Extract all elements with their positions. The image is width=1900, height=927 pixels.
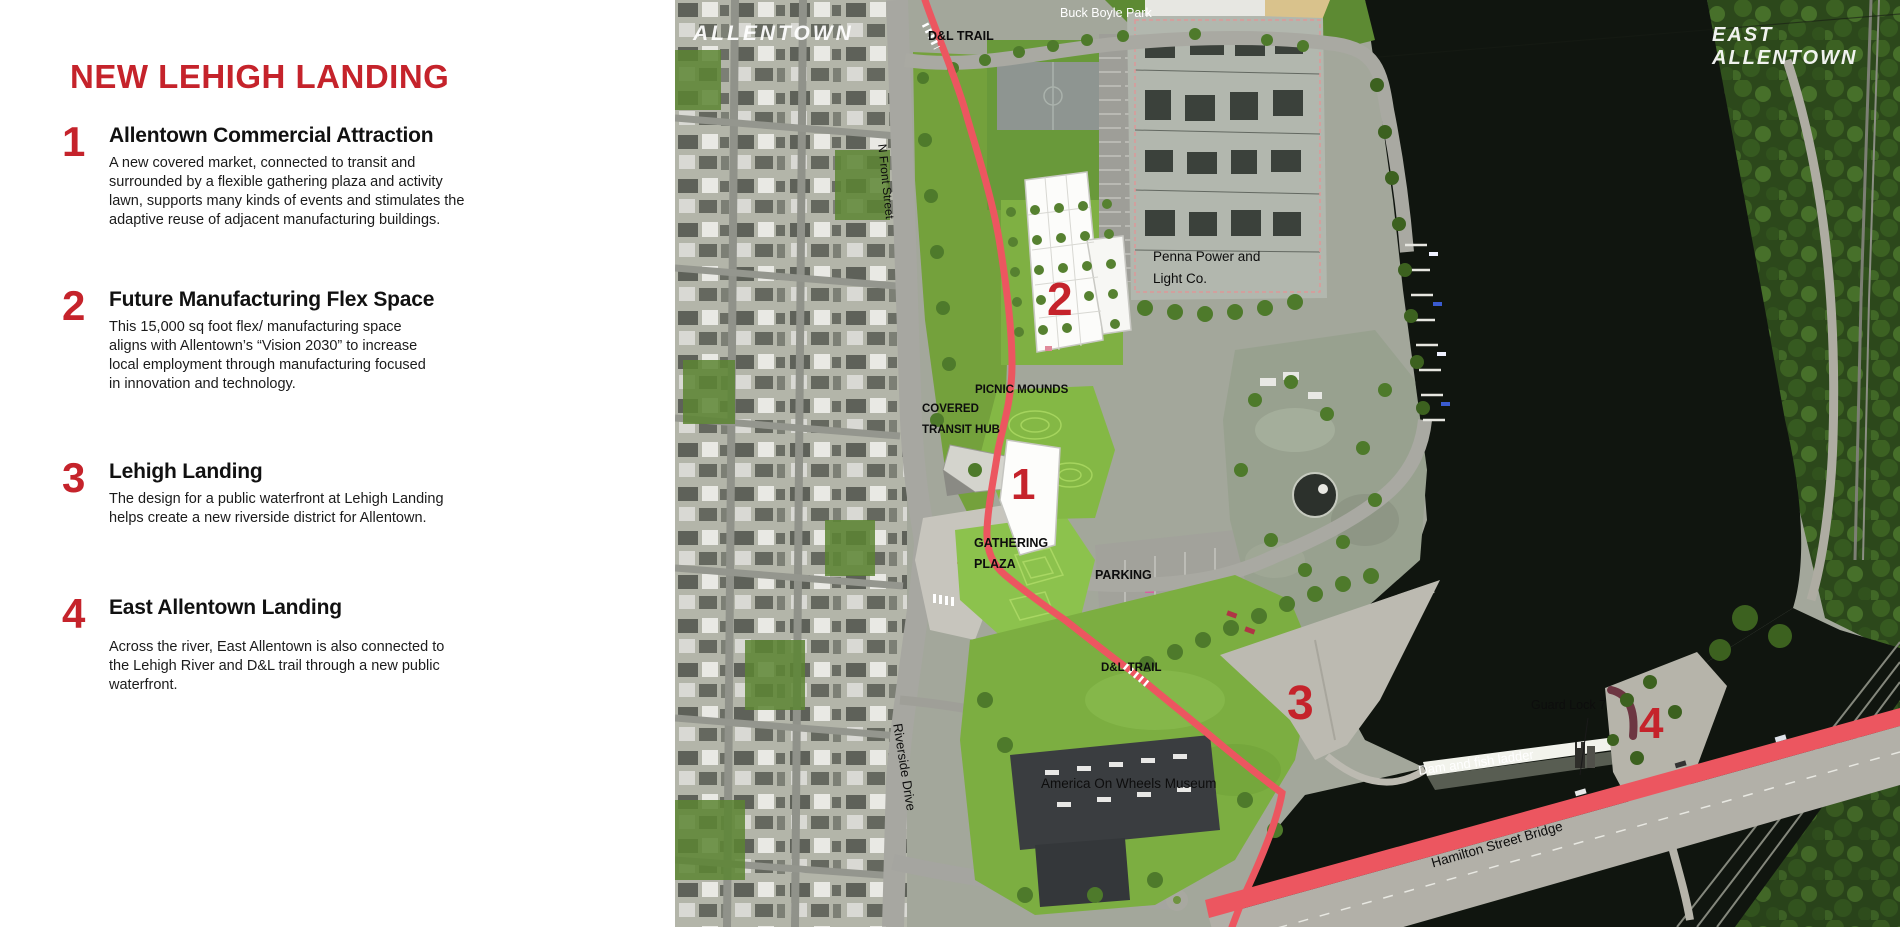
map-marker-4: 4 bbox=[1639, 702, 1663, 746]
urban-blocks bbox=[675, 0, 907, 927]
legend-number-1: 1 bbox=[62, 124, 109, 231]
legend-panel: NEW LEHIGH LANDING 1 Allentown Commercia… bbox=[0, 0, 675, 927]
legend-body-3: The design for a public waterfront at Le… bbox=[109, 490, 552, 528]
legend-heading-2: Future Manufacturing Flex Space bbox=[109, 288, 552, 312]
legend-item-3: 3 Lehigh Landing The design for a public… bbox=[62, 460, 552, 528]
legend-body-1: A new covered market, connected to trans… bbox=[109, 154, 552, 231]
legend-item-1: 1 Allentown Commercial Attraction A new … bbox=[62, 124, 552, 231]
label-dl-trail-top: D&L TRAIL bbox=[928, 27, 994, 46]
legend-heading-1: Allentown Commercial Attraction bbox=[109, 124, 552, 148]
legend-body-4: Across the river, East Allentown is also… bbox=[109, 638, 552, 695]
label-gathering-plaza: GATHERING PLAZA bbox=[974, 533, 1048, 576]
legend-item-2: 2 Future Manufacturing Flex Space This 1… bbox=[62, 288, 552, 395]
site-plan-map: ALLENTOWN EAST ALLENTOWN Buck Boyle Park… bbox=[675, 0, 1900, 927]
legend-item-4: 4 East Allentown Landing Across the rive… bbox=[62, 596, 552, 695]
label-parking: PARKING bbox=[1095, 566, 1152, 585]
label-penna-power: Penna Power and Light Co. bbox=[1153, 246, 1260, 289]
legend-heading-4: East Allentown Landing bbox=[109, 596, 552, 620]
legend-body-2: This 15,000 sq foot flex/ manufacturing … bbox=[109, 318, 552, 395]
label-guard-lock: Guard Lock 7 bbox=[1531, 696, 1606, 715]
label-picnic-mounds: PICNIC MOUNDS bbox=[975, 382, 1068, 400]
map-marker-2: 2 bbox=[1047, 276, 1073, 322]
legend-heading-3: Lehigh Landing bbox=[109, 460, 552, 484]
legend-number-4: 4 bbox=[62, 596, 109, 695]
map-marker-1: 1 bbox=[1011, 463, 1035, 507]
satellite-map-svg bbox=[675, 0, 1900, 927]
label-america-on-wheels: America On Wheels Museum bbox=[1041, 774, 1217, 795]
label-buck-boyle-park: Buck Boyle Park bbox=[1060, 4, 1152, 23]
label-covered-transit-hub: COVERED TRANSIT HUB bbox=[922, 399, 1000, 440]
map-marker-3: 3 bbox=[1287, 680, 1314, 728]
label-allentown: ALLENTOWN bbox=[693, 22, 854, 46]
legend-number-2: 2 bbox=[62, 288, 109, 395]
label-dl-trail-lower: D&L TRAIL bbox=[1101, 660, 1161, 678]
label-east-allentown: EAST ALLENTOWN bbox=[1712, 24, 1900, 70]
page-title: NEW LEHIGH LANDING bbox=[70, 58, 449, 96]
legend-number-3: 3 bbox=[62, 460, 109, 528]
presentation-board: NEW LEHIGH LANDING 1 Allentown Commercia… bbox=[0, 0, 1900, 927]
